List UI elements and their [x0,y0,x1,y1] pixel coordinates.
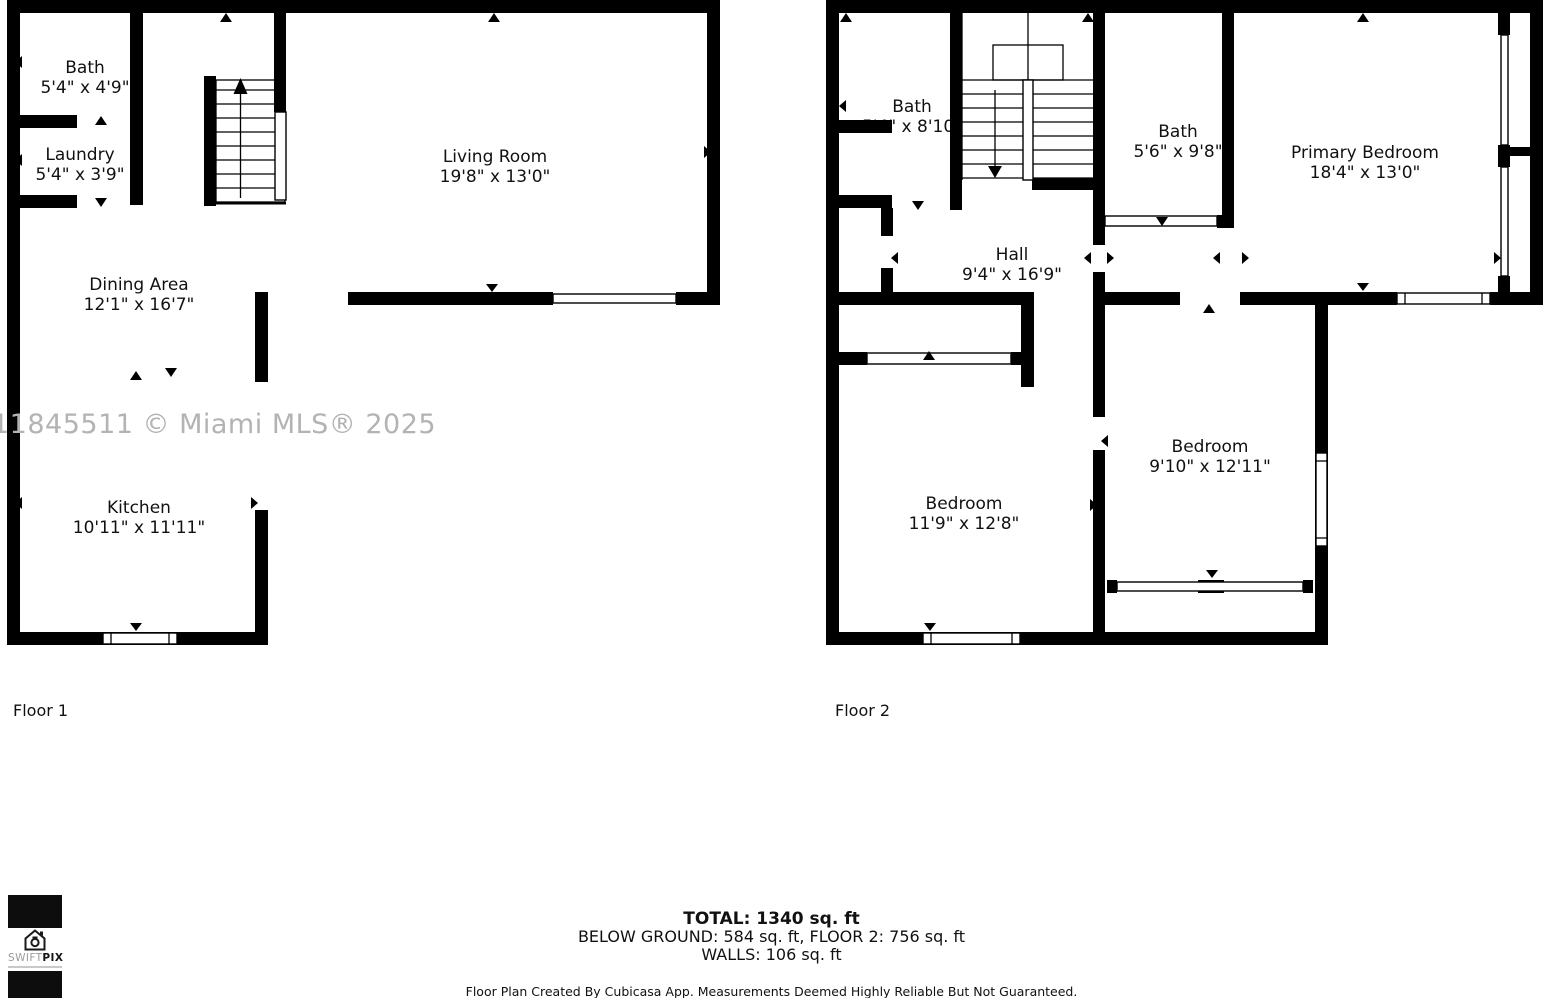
kitchen-window [103,633,177,644]
bedroom-closet-doors [867,353,1011,364]
mls-watermark: 11845511 © Miami MLS® 2025 [0,409,436,440]
logo-brand-bold: PIX [42,952,63,964]
swiftpix-logo: SWIFTPIX [8,895,62,998]
logo-brand: SWIFTPIX [8,952,62,964]
bedroom-side-window [1316,453,1327,546]
floor2-plan [826,0,1543,645]
floorplan-drawing [0,0,1543,660]
floor1-windows [103,294,676,644]
floor1-exterior-walls [7,0,720,645]
logo-tagline [8,966,62,968]
floor1-door-arrows [15,13,711,631]
bedroom-bottom-window [923,633,1020,644]
disclaimer-text: Floor Plan Created By Cubicasa App. Meas… [0,984,1543,998]
living-room-opening [553,294,676,303]
walls-area: WALLS: 106 sq. ft [0,946,1543,964]
floor2-door-arrows [839,13,1501,631]
logo-bottom-block [8,971,62,998]
area-summary: TOTAL: 1340 sq. ft BELOW GROUND: 584 sq.… [0,910,1543,964]
floor1-plan [7,0,720,645]
total-area: TOTAL: 1340 sq. ft [0,910,1543,928]
primary-closet-track [1501,167,1508,276]
logo-top-block [8,895,62,928]
floorplan-canvas: Bath 5'4" x 4'9" Laundry 5'4" x 3'9" Liv… [0,0,1543,998]
floor2-exterior-walls [826,0,1543,645]
bedroom-closet-track [1117,582,1303,591]
floor2-windows [867,35,1508,644]
floor1-label: Floor 1 [13,701,68,720]
stair-railing [275,112,286,200]
stairs-down-arrow [988,166,1002,178]
floor2-staircase [962,13,1093,180]
floor2-label: Floor 2 [835,701,890,720]
area-breakdown: BELOW GROUND: 584 sq. ft, FLOOR 2: 756 s… [0,928,1543,946]
primary-bedroom-window [1397,293,1490,304]
logo-brand-light: SWIFT [8,952,42,964]
floor2-interior-walls [826,0,1530,645]
camera-house-icon [8,929,62,951]
primary-closet-track [1501,35,1508,145]
stair-railing [1023,80,1033,180]
